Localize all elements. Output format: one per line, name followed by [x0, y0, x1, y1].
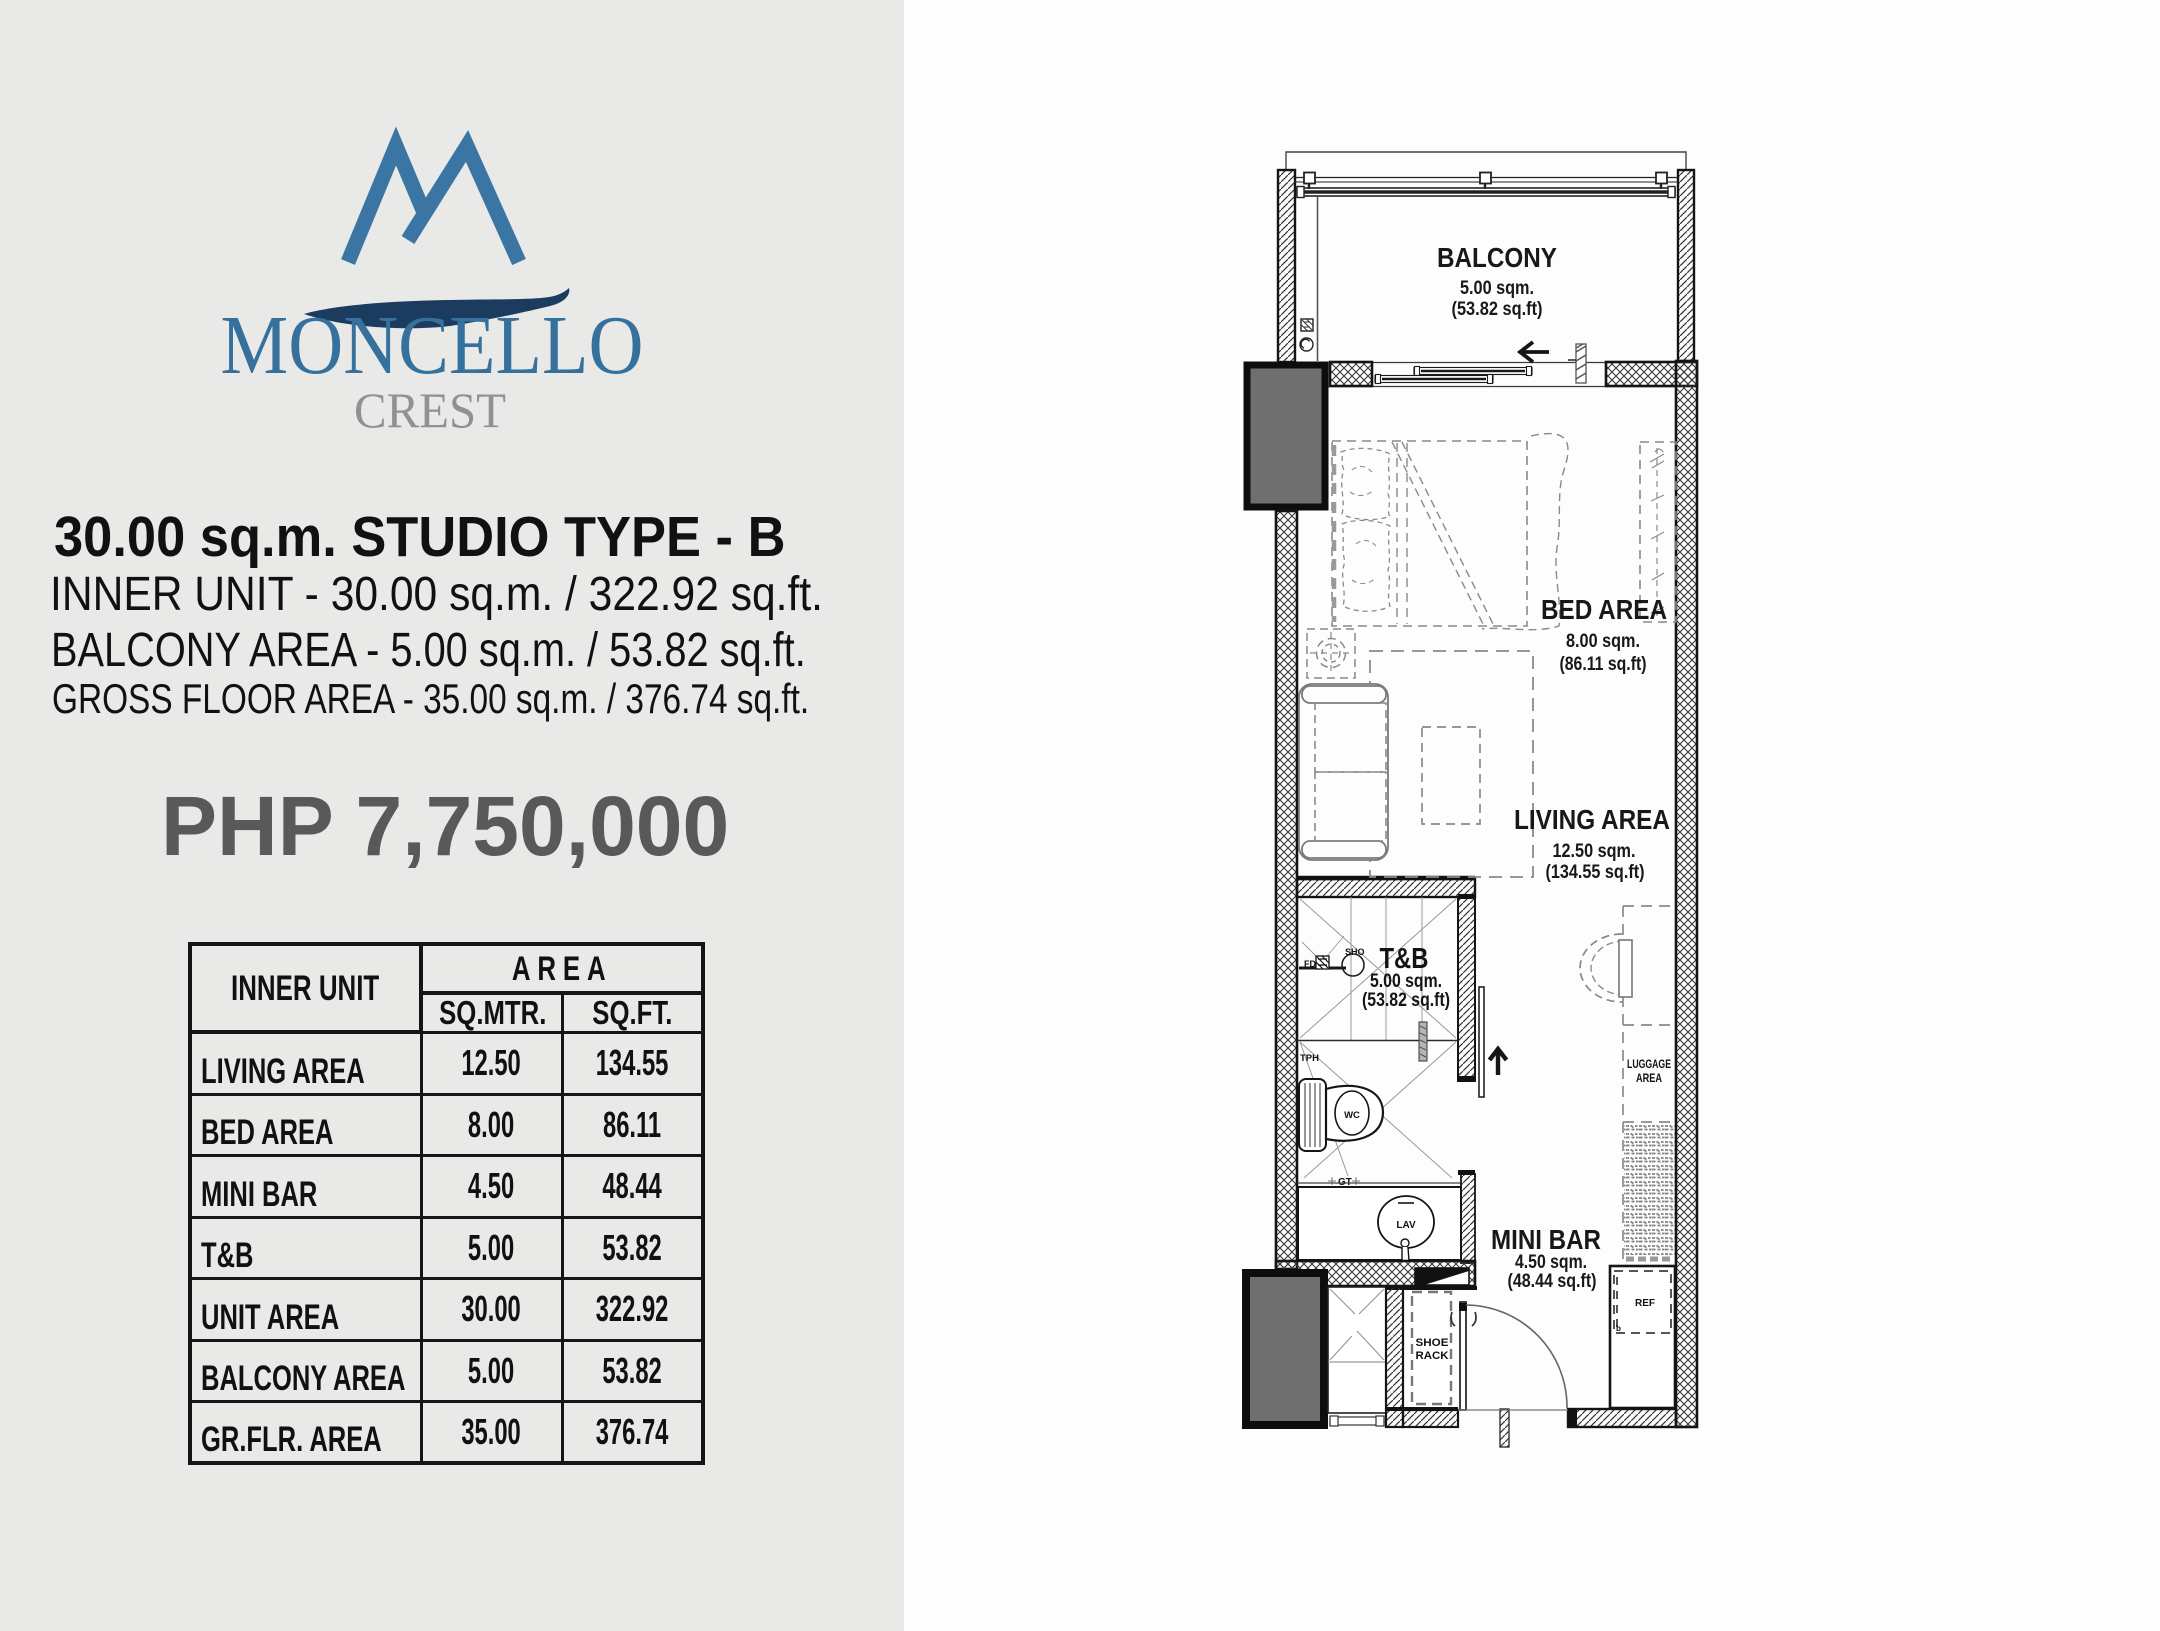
svg-text:b: b: [1616, 1324, 1621, 1333]
svg-text:WC: WC: [1344, 1110, 1360, 1121]
svg-text:(48.44 sq.ft): (48.44 sq.ft): [1508, 1271, 1597, 1292]
svg-text:BED AREA: BED AREA: [1541, 594, 1667, 625]
svg-text:8.00 sqm.: 8.00 sqm.: [1566, 630, 1640, 652]
svg-text:SHO: SHO: [1345, 947, 1365, 957]
svg-text:LAV: LAV: [1396, 1220, 1416, 1231]
svg-text:TPH: TPH: [1300, 1053, 1319, 1064]
svg-text:(53.82 sq.ft): (53.82 sq.ft): [1362, 990, 1450, 1011]
svg-text:(86.11 sq.ft): (86.11 sq.ft): [1560, 653, 1647, 675]
svg-text:AREA: AREA: [1636, 1073, 1662, 1085]
svg-text:RACK: RACK: [1416, 1350, 1449, 1362]
svg-text:REF: REF: [1635, 1298, 1655, 1309]
svg-text:SHOE: SHOE: [1416, 1337, 1449, 1349]
svg-text:FD: FD: [1304, 959, 1316, 969]
svg-text:12.50 sqm.: 12.50 sqm.: [1553, 840, 1636, 862]
svg-text:MINI BAR: MINI BAR: [1491, 1224, 1601, 1255]
svg-text:LUGGAGE: LUGGAGE: [1627, 1059, 1671, 1071]
svg-text:LIVING AREA: LIVING AREA: [1514, 804, 1670, 835]
svg-text:5.00 sqm.: 5.00 sqm.: [1370, 971, 1442, 992]
svg-text:5.00 sqm.: 5.00 sqm.: [1460, 277, 1534, 299]
svg-text:(53.82 sq.ft): (53.82 sq.ft): [1452, 298, 1543, 320]
svg-text:BALCONY: BALCONY: [1437, 242, 1557, 273]
svg-text:4.50 sqm.: 4.50 sqm.: [1515, 1252, 1587, 1273]
svg-text:(134.55 sq.ft): (134.55 sq.ft): [1546, 861, 1645, 883]
